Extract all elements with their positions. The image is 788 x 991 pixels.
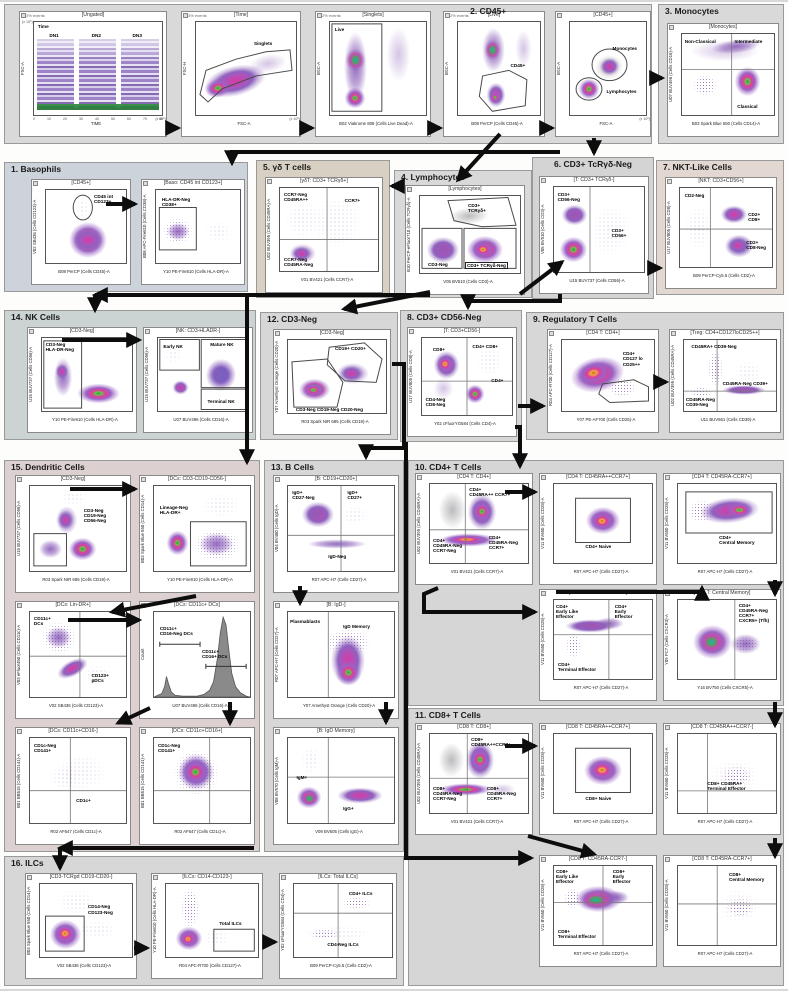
flow-plot: [CD3-TCRgd CD19-CD20-]CD14-Neg CD123-Neg…	[25, 873, 137, 979]
plot-corner-icon	[417, 475, 422, 480]
flow-plot: [DCs: CD3-CD19-CD56-]Lineage-Neg HLA-DR+…	[139, 475, 255, 593]
y-axis-label: U15 BUV737 (Cells CD56)-A	[29, 337, 39, 412]
gate-label: HLA-DR-Neg CD38+	[162, 197, 190, 207]
gate-label: CD2-Neg	[685, 193, 705, 198]
x-axis-unit: (x 10⁶)	[639, 117, 650, 121]
gate-label: CD4+ CD127 lo CD25++	[623, 351, 643, 366]
event-count-label: 2% events	[450, 13, 469, 18]
gate-label: CD2+ CD8+	[748, 212, 760, 222]
panel-title: 14. NK Cells	[11, 312, 60, 322]
plot-corner-icon	[541, 857, 546, 862]
plot-corner-icon	[145, 329, 150, 334]
plot-title: [CD4 T: CD45RA++CCR7+]	[540, 474, 656, 482]
gate-label: CD4+ Naive	[585, 544, 611, 549]
gate-label: Total ILCs	[219, 921, 241, 926]
gate-label: Live	[335, 27, 344, 32]
plot-corner-icon	[33, 181, 38, 186]
gate-label: DN2	[92, 33, 101, 38]
plot-corner-icon	[275, 603, 280, 608]
plot-area: CD1c-Neg CD141+CD1c+	[29, 737, 127, 824]
gate-label: CD1c-Neg CD141+	[158, 743, 180, 753]
gate-label: CD4+ Terminal Effector	[558, 662, 596, 672]
flow-plot: [ILCs: Total ILCs]CD4+ ILCsCD4-Neg ILCsY…	[279, 873, 397, 979]
gate-label: CD4+ Early Like Effector	[556, 604, 578, 619]
flow-plot: [Singlets]2% eventsLiveBSC-AB02 Viakrome…	[315, 11, 431, 137]
panel-nkt: 7. NKT-Like Cells[NKT: CD3+CD56+]CD2-Neg…	[656, 160, 784, 295]
y-axis-label: U07 BUV496 (Cells CD16)-A	[669, 33, 679, 116]
y-axis-unit: (x 10⁶)	[22, 20, 33, 24]
panel-cd3neg: 12. CD3-Neg[CD3-Neg]CD19+ CD20+CD3-Neg C…	[260, 312, 398, 440]
plot-title: [Lymphocytes]	[406, 186, 524, 194]
y-axis-label: V11 BV650 (Cells CD28)-A	[541, 733, 551, 814]
panel-title: 6. CD3+ TcRγδ-Neg	[554, 159, 632, 169]
x-axis-label: V02 SB436 (Cells CD123)-A	[23, 704, 129, 709]
gate-label: CD8+ CD45RA-Neg CCR7-Neg	[433, 786, 462, 801]
x-axis-label: V01 BV421 (Cells CCR7)-A	[273, 278, 381, 283]
plot-title: [NKT: CD3+CD56+]	[666, 178, 776, 186]
gate-label: CD4+ CD45RA-Neg CCR7+ CXCR5+ (Tfh)	[739, 603, 769, 623]
panel-title: 5. γδ T cells	[263, 162, 311, 172]
flow-plot: [B: IgD Memory]IgM+IgG+V08 BV570 (Cells …	[273, 727, 399, 845]
panel-title: 4. Lymphocytes	[401, 172, 465, 182]
panel-title: 13. B Cells	[271, 462, 314, 472]
gate-label: CD1c+	[76, 798, 91, 803]
x-tick: 20	[63, 117, 67, 121]
gate-outline	[599, 380, 649, 403]
gate-outline	[332, 24, 382, 111]
plot-area: CD3+ CD56-NegCD3+ CD56+	[553, 186, 645, 273]
gate-label: CD3-Neg CD19-Neg CD20-Neg	[296, 407, 363, 412]
panel-treg: 9. Regulatory T Cells[CD4 T: CD4+]CD4+ C…	[526, 312, 784, 440]
y-axis-label: R07 APC-H7 (Cells CD27)-A	[275, 611, 285, 698]
gate-overlay	[682, 34, 774, 115]
y-axis-label: Y10 PE-Fire810 (Cells HLA-DR)-A	[153, 883, 163, 958]
x-axis-label: Y10 PE-Fire810 (Cells HLA-DR)-A	[35, 418, 135, 423]
plot-corner-icon	[29, 329, 34, 334]
gate-outline	[686, 492, 772, 533]
plot-corner-icon	[667, 179, 672, 184]
y-axis-label: V02 SB436 (Cells CD123)-A	[33, 189, 43, 264]
panel-title: 1. Basophils	[11, 164, 61, 174]
flow-plot: [B: CD19+CD20+]IgD+ CD27-NegIgD+ CD27+Ig…	[273, 475, 399, 593]
gate-label: Classical	[737, 104, 757, 109]
flow-plot: [CD3-Neg]CD3-Neg CD19-Neg CD56-NegU15 BU…	[15, 475, 131, 593]
x-axis-label: FSC-A	[189, 122, 299, 127]
gate-overlay	[288, 612, 394, 697]
y-axis-label: Y09 PC7 (Cells CXCR3)-A	[665, 599, 675, 680]
y-axis-label: V05 BV510 (Cells CD3)-A	[541, 186, 551, 273]
plot-corner-icon	[549, 331, 554, 336]
gate-label: CCR7-Neg CD45RA-Neg	[284, 257, 313, 267]
plot-area: CD45RA+ CD39-NegCD45RA-Neg CD39+CD45RA-N…	[683, 339, 777, 412]
plot-corner-icon	[275, 331, 280, 336]
plot-area: CD4+ ILCsCD4-Neg ILCs	[293, 883, 393, 958]
flow-plot: [Treg: CD4+CD127loCD25++]CD45RA+ CD39-Ne…	[669, 329, 781, 433]
x-axis-label: V01 BV421 (Cells CCR7)-A	[423, 570, 531, 575]
x-axis-label: Y07 PE-AF700 (Cells CD25)-A	[555, 418, 657, 423]
x-axis-label: R02 AF647 (Cells CD1c)-A	[23, 830, 129, 835]
x-tick-labels: 01020304050607080	[33, 117, 163, 121]
plot-title: [CD4 T: Central Memory]	[664, 590, 780, 598]
panel-title: 8. CD3+ CD56-Neg	[407, 312, 481, 322]
plot-title: [CD8 T: CD45RA++CCR7+]	[540, 724, 656, 732]
gate-label: CD8+ Central Memory	[729, 872, 764, 882]
y-axis-label: V11 BV650 (Cells CD28)-A	[665, 865, 675, 946]
gate-label: CD8+ CD45RA++CCR7+	[471, 737, 511, 747]
gate-label: Terminal NK	[208, 399, 235, 404]
flow-plot: [Ungated]3% eventsTimeDN1DN2DN3FSC-ATIME…	[19, 11, 167, 137]
gate-outline	[292, 359, 343, 407]
y-axis-label: BSC-A	[445, 21, 455, 116]
gate-label: CD3-Neg HLA-DR-Neg	[46, 342, 74, 352]
panel-monocytes: 3. Monocytes[Monocytes]Non-ClassicalInte…	[658, 4, 784, 144]
flow-plot: [CD4 T: CD45RA-CCR7-]CD4+ Early Like Eff…	[539, 589, 657, 701]
plot-area: CD19+ CD20+CD3-Neg CD19-Neg CD20-Neg	[287, 339, 387, 414]
x-axis-label: U11 BUV661 (Cells CD39)-A	[677, 418, 779, 423]
plot-corner-icon	[281, 875, 286, 880]
x-axis-label: FSC-A	[563, 122, 649, 127]
flow-plot: [T: CD3+CD56-]CD8+CD4+ CD8+CD4+CD4-Neg C…	[407, 327, 517, 437]
flow-plot: [CD45+]MonocytesLymphocytesBSC-AFSC-A(x …	[555, 11, 651, 137]
x-axis-label: V01 BV421 (Cells CCR7)-A	[423, 820, 531, 825]
x-axis-label: R07 APC-H7 (Cells CD27)-A	[547, 820, 655, 825]
x-axis-label: V02 SB436 (Cells CD123)-A	[33, 964, 135, 969]
gate-label: CD4-Neg CD8-Neg	[426, 397, 446, 407]
plot-corner-icon	[143, 181, 148, 186]
flow-plot: [CD8 T: CD45RA-CCR7+]CD8+ Central Memory…	[663, 855, 781, 967]
plot-corner-icon	[669, 25, 674, 30]
gate-outline	[200, 50, 292, 102]
plot-title: [CD8 T: CD45RA++CCR7-]	[664, 724, 780, 732]
y-axis-label: B03 Spark Blue 550 (Cells CD14)-A	[27, 883, 37, 958]
plot-area: IgD+ CD27-NegIgD+ CD27+IgD-Neg	[287, 485, 395, 572]
x-axis-label: U15 BUV737 (Cells CD56)-A	[547, 279, 647, 284]
plot-area: CD4+ Naive	[553, 483, 653, 564]
gate-label: Singlets	[254, 41, 272, 46]
y-axis-label: U02 BUV395 (Cells CD45RA)-A	[417, 483, 427, 564]
gate-label: CD8+ Early Effector	[613, 869, 631, 884]
plot-title: [ILCs: Total ILCs]	[280, 874, 396, 882]
plot-title: [DCs: CD11c+ DCs]	[140, 602, 254, 610]
gate-label: CD3-Neg	[428, 262, 448, 267]
plot-title: [Monocytes]	[668, 24, 778, 32]
flow-plot: [Time]3% eventsSingletsFSC-HFSC-A(x 10⁶)	[181, 11, 301, 137]
gate-overlay	[330, 22, 426, 115]
x-axis-label: R03 Spark NIR 685 (Cells CD19)-A	[23, 578, 129, 583]
gate-label: CD11c+ CD16+ DCs	[202, 649, 227, 659]
panel-title: 7. NKT-Like Cells	[663, 162, 732, 172]
panel-cd3cd56neg: 8. CD3+ CD56-Neg[T: CD3+CD56-]CD8+CD4+ C…	[400, 310, 522, 442]
gate-label: CD11c+ CD16-Neg DCs	[160, 626, 193, 636]
plot-title: [B: IgD Memory]	[274, 728, 398, 736]
plot-corner-icon	[671, 331, 676, 336]
y-axis-label: V11 BV650 (Cells CD28)-A	[541, 865, 551, 946]
y-axis-label: R04 APC-R700 (Cells CD127)-A	[549, 339, 559, 412]
gate-outline	[576, 748, 631, 792]
panel-title: 9. Regulatory T Cells	[533, 314, 617, 324]
gate-overlay	[154, 486, 250, 571]
gate-label: CD8+	[433, 347, 445, 352]
gate-label: CD45RA+ CD39-Neg	[691, 344, 736, 349]
flow-plot: [DCs: CD11c+CD16-]CD1c-Neg CD141+CD1c+B0…	[15, 727, 131, 845]
plot-area: CD8+CD4+ CD8+CD4+CD4-Neg CD8-Neg	[421, 337, 513, 416]
plot-corner-icon	[17, 729, 22, 734]
plot-area: Live	[329, 21, 427, 116]
gate-overlay	[570, 22, 646, 115]
gate-label: CD45RA-Neg CD39+	[723, 381, 768, 386]
gate-label: CD2+ CD8-Neg	[746, 240, 766, 250]
flow-plot: [NK: CD3-HLADR-]Early NKMature NKTermina…	[143, 327, 253, 433]
event-count-label: 2% events	[322, 13, 341, 18]
x-tick: 40	[95, 117, 99, 121]
plot-area: Total ILCs	[165, 883, 259, 958]
gate-label: Time	[38, 24, 49, 29]
flow-plot: [γδT: CD3+ TCRγδ+]CCR7-Neg CD45RA++CCR7+…	[265, 177, 383, 293]
gate-label: CD4+ CD45RA++ CCR7+	[469, 487, 510, 497]
y-axis-label: BSC-A	[557, 21, 567, 116]
plot-title: [DCs: CD11c+CD16+]	[140, 728, 254, 736]
gate-outline	[159, 208, 196, 250]
panel-lymphocytes: 4. Lymphocytes[Lymphocytes]CD3+ TCRγδ+CD…	[394, 170, 532, 298]
gate-label: CD14-Neg CD123-Neg	[88, 904, 113, 914]
plot-title: [T: CD3+CD56-]	[408, 328, 516, 336]
x-axis-label: R07 APC-H7 (Cells CD27)-A	[547, 686, 655, 691]
plot-corner-icon	[275, 729, 280, 734]
panel-dc: 15. Dendritic Cells[CD3-Neg]CD3-Neg CD19…	[4, 460, 260, 852]
plot-area: CD2-NegCD2+ CD8+CD2+ CD8-Neg	[679, 187, 773, 268]
gate-label: Lymphocytes	[606, 89, 636, 94]
plot-title: [CD3-Neg]	[16, 476, 130, 484]
gate-overlay	[554, 484, 652, 563]
plot-corner-icon	[17, 477, 22, 482]
gate-overlay	[678, 484, 776, 563]
gate-label: CD123+ pDCs	[91, 673, 108, 683]
plot-corner-icon	[541, 178, 546, 183]
x-axis-label: R07 APC-H7 (Cells CD27)-A	[671, 952, 779, 957]
x-tick: 70	[143, 117, 147, 121]
plot-title: [CD8 T: CD8+]	[416, 724, 532, 732]
y-axis-label: V11 BV650 (Cells CD28)-A	[541, 599, 551, 680]
gate-label: CD3+ CD56-Neg	[558, 192, 580, 202]
gate-overlay	[40, 884, 132, 957]
gate-label: CD4+ CD8+	[472, 344, 498, 349]
gate-outline	[34, 534, 67, 566]
y-axis-label: B08 APC-Fire810 (Cells CD38)-A	[143, 189, 153, 264]
plot-corner-icon	[665, 725, 670, 730]
plot-area: CD8+ Central Memory	[677, 865, 777, 946]
plot-area: CD45+	[457, 21, 541, 116]
panel-nk: 14. NK Cells[CD3-Neg]CD3-Neg HLA-DR-NegU…	[4, 310, 256, 440]
x-axis-label: R07 APC-H7 (Cells CD27)-A	[547, 570, 655, 575]
plot-title: [Treg: CD4+CD127loCD25++]	[670, 330, 780, 338]
gate-outline	[592, 49, 627, 81]
plot-area: CD4+ CD45RA-Neg CCR7+ CXCR5+ (Tfh)	[677, 599, 777, 680]
plot-title: [CD3-Neg]	[274, 330, 390, 338]
gate-label: CD45 int CD123+	[94, 194, 113, 204]
gate-label: CD3+ TCRγδ-Neg	[465, 262, 508, 269]
y-axis-label: U17 BUV805 (Cells CD8)-A	[667, 187, 677, 268]
panel-gdt: 5. γδ T cells[γδT: CD3+ TCRγδ+]CCR7-Neg …	[256, 160, 390, 298]
x-tick: 30	[79, 117, 83, 121]
flow-plot: [CD4 T: CD45RA-CCR7+]CD4+ Central Memory…	[663, 473, 781, 585]
panel-cd8t: 11. CD8+ T Cells[CD8 T: CD8+]CD8+ CD45RA…	[408, 708, 784, 986]
gate-outline	[576, 78, 602, 100]
panel-ilcs: 16. ILCs[CD3-TCRgd CD19-CD20-]CD14-Neg C…	[4, 856, 404, 986]
gate-label: CD45+	[510, 63, 525, 68]
flow-plot: [CD8 T: CD45RA++CCR7-]CD8+ CD45RA+ Termi…	[663, 723, 781, 835]
gate-label: CD11c+ DCs	[34, 616, 51, 626]
panel-title: 12. CD3-Neg	[267, 314, 317, 324]
y-axis-label: FSC-H	[183, 21, 193, 116]
gate-label: IgD+ CD27+	[347, 490, 362, 500]
plot-corner-icon	[275, 477, 280, 482]
y-axis-label: B01 BB515 (Cells CD141)-A	[17, 737, 27, 824]
gate-overlay	[288, 340, 386, 413]
plot-area: CD4+ CD127 lo CD25++	[561, 339, 655, 412]
x-axis-label: U07 BUV496 (Cells CD16)-A	[147, 704, 253, 709]
gate-outline	[73, 195, 92, 220]
gate-outline	[479, 70, 527, 111]
flow-plot: [CD3-Neg]CD3-Neg HLA-DR-NegU15 BUV737 (C…	[27, 327, 137, 433]
gate-label: CD8+ CD45RA-Neg CCR7+	[487, 786, 516, 801]
y-axis-label: V03 eFluor450 (Cells CD11c)-A	[17, 611, 27, 698]
gate-label: CD4+ ILCs	[349, 891, 373, 896]
x-tick: 10	[47, 117, 51, 121]
plot-area: CD11c+ DCsCD123+ pDCs	[29, 611, 127, 698]
plot-title: [ILCs: CD14-CD123-]	[152, 874, 262, 882]
plot-title: [CD4 T: CD45RA-CCR7-]	[540, 590, 656, 598]
flow-plot: [DCs: CD11c+CD16+]CD1c-Neg CD141+B01 BB5…	[139, 727, 255, 845]
panel-title: 16. ILCs	[11, 858, 44, 868]
gate-overlay	[46, 190, 126, 263]
x-axis-label: B09 PerCP-Cy5.5 (Cells CD2)-A	[287, 964, 395, 969]
gate-label: CCR7-Neg CD45RA++	[284, 192, 308, 202]
plot-area: CD4+ CD45RA++ CCR7+CD4+ CD45RA-Neg CCR7-…	[429, 483, 529, 564]
gate-overlay	[30, 486, 126, 571]
plot-area: Singlets	[195, 21, 297, 116]
plot-corner-icon	[541, 475, 546, 480]
x-tick: 60	[127, 117, 131, 121]
event-count-label: 3% events	[26, 13, 45, 18]
plot-title: [CD8 T: CD45RA-CCR7-]	[540, 856, 656, 864]
plot-title: [CD45+]	[32, 180, 130, 188]
flow-plot: [DCs: Lin-DR+]CD11c+ DCsCD123+ pDCsV03 e…	[15, 601, 131, 719]
gate-label: CD3-Neg CD19-Neg CD56-Neg	[84, 508, 106, 523]
plot-area: CD4+ Early Like EffectorCD4+ Early Effec…	[553, 599, 653, 680]
plot-corner-icon	[153, 875, 158, 880]
flow-plot: [CD4 T: CD4+]CD4+ CD45RA++ CCR7+CD4+ CD4…	[415, 473, 533, 585]
y-axis-label: Count	[141, 611, 151, 698]
gating-strategy-diagram: 2. CD45+[Ungated]3% eventsTimeDN1DN2DN3F…	[0, 0, 788, 991]
plot-corner-icon	[665, 591, 670, 596]
flow-plot: [Lymphocytes]CD3+ TCRγδ+CD3-NegCD3+ TCRγ…	[405, 185, 525, 295]
plot-title: [CD3-TCRgd CD19-CD20-]	[26, 874, 136, 882]
flow-plot: [Baso: CD45 int CD123+]HLA-DR-Neg CD38+B…	[141, 179, 245, 285]
gate-label: CD4+	[491, 378, 503, 383]
plot-area: CD3-Neg CD19-Neg CD56-Neg	[29, 485, 127, 572]
gate-label: IgG+	[343, 806, 354, 811]
plot-title: [B: CD19+CD20+]	[274, 476, 398, 484]
x-axis-label: Y16 BV750 (Cells CXCR5)-A	[671, 686, 779, 691]
x-axis-label: TIME	[27, 122, 165, 127]
flow-plot: [T: CD3+ TCRγδ-]CD3+ CD56-NegCD3+ CD56+V…	[539, 176, 649, 294]
flow-plot: [CD4 T: Central Memory]CD4+ CD45RA-Neg C…	[663, 589, 781, 701]
x-axis-label: R07 APC-H7 (Cells CD27)-A	[281, 578, 397, 583]
plot-area: HLA-DR-Neg CD38+	[155, 189, 241, 264]
flow-plot: [CD8 T: CD45RA-CCR7-]CD8+ Early Like Eff…	[539, 855, 657, 967]
gate-label: IgD-Neg	[328, 554, 346, 559]
panel-title: 15. Dendritic Cells	[11, 462, 85, 472]
gate-label: Plasmablasts	[290, 619, 320, 624]
x-axis-label: V05 BV510 (Cells CD3)-A	[413, 280, 523, 285]
plot-title: [T: CD3+ TCRγδ-]	[540, 177, 648, 185]
plot-corner-icon	[27, 875, 32, 880]
y-axis-label: V08 BV570 (Cells IgM)-A	[275, 737, 285, 824]
x-axis-label: V09 BV605 (Cells IgG)-A	[281, 830, 397, 835]
gate-label: CD45RA-Neg CD39-Neg	[686, 397, 715, 407]
gate-overlay	[196, 22, 296, 115]
x-axis-unit: (x 10⁶)	[289, 117, 300, 121]
plot-area: CD14-Neg CD123-Neg	[39, 883, 133, 958]
gate-label: CD4+ Central Memory	[719, 535, 754, 545]
gate-label: DN1	[49, 33, 58, 38]
x-axis-label: R02 AF647 (Cells CD1c)-A	[147, 830, 253, 835]
flow-plot: [CD45+]CD45 int CD123+V02 SB436 (Cells C…	[31, 179, 131, 285]
gate-label: CD4+ Early Effector	[615, 604, 633, 619]
plot-corner-icon	[665, 857, 670, 862]
plot-area: CD8+ Early Like EffectorCD8+ Early Effec…	[553, 865, 653, 946]
y-axis-label: U15 BUV737 (Cells CD56)-A	[17, 485, 27, 572]
gate-overlay	[680, 188, 772, 267]
gate-outline	[190, 522, 246, 566]
gate-label: Monocytes	[613, 46, 637, 51]
gate-label: CD8+ Terminal Effector	[558, 929, 596, 939]
flow-plot: [B: IgD-]PlasmablastsIgD MemoryR07 APC-H…	[273, 601, 399, 719]
y-axis-label: U02 BUV395 (Cells CD45RA)-A	[417, 733, 427, 814]
plot-title: [CD8 T: CD45RA-CCR7+]	[664, 856, 780, 864]
plot-area: CD4+ Central Memory	[677, 483, 777, 564]
plot-corner-icon	[407, 187, 412, 192]
plot-title: [CD4 T: CD4+]	[548, 330, 658, 338]
plot-title: [CD4 T: CD4+]	[416, 474, 532, 482]
plot-area: Lineage-Neg HLA-DR+	[153, 485, 251, 572]
flow-plot: [DCs: CD11c+ DCs]CD11c+ CD16-Neg DCsCD11…	[139, 601, 255, 719]
plot-area: CD3+ TCRγδ+CD3-NegCD3+ TCRγδ-Neg	[419, 195, 521, 274]
gate-label: CD3+ CD56+	[612, 228, 627, 238]
plot-title: [DCs: Lin-DR+]	[16, 602, 130, 610]
plot-corner-icon	[141, 477, 146, 482]
panel-title: 10. CD4+ T Cells	[415, 462, 481, 472]
plot-area: CD1c-Neg CD141+	[153, 737, 251, 824]
flow-plot: [CD8 T: CD8+]CD8+ CD45RA++CCR7+CD8+ CD45…	[415, 723, 533, 835]
gate-label: Non-Classical	[685, 39, 716, 44]
flow-plot: [Live]2% eventsCD45+BSC-AB08 PerCP (Cell…	[443, 11, 545, 137]
panel-cd4t: 10. CD4+ T Cells[CD4 T: CD4+]CD4+ CD45RA…	[408, 460, 784, 706]
plot-corner-icon	[17, 603, 22, 608]
y-axis-label: B03 Spark Blue 550 (Cells CD14)-A	[141, 485, 151, 572]
gate-label: CD4-Neg ILCs	[327, 942, 358, 947]
plot-title: [B: IgD-]	[274, 602, 398, 610]
plot-area: MonocytesLymphocytes	[569, 21, 647, 116]
panel-title: 2. CD45+	[470, 6, 506, 16]
plot-corner-icon	[557, 13, 562, 18]
y-axis-label: V11 BV650 (Cells CD28)-A	[665, 483, 675, 564]
plot-area: CD3-Neg HLA-DR-Neg	[41, 337, 133, 412]
gate-label: CD19+ CD20+	[335, 346, 366, 351]
panel-title: 3. Monocytes	[665, 6, 719, 16]
plot-area: CCR7-Neg CD45RA++CCR7+CCR7-Neg CD45RA-Ne…	[279, 187, 379, 272]
plot-title: [CD45+]	[556, 12, 650, 20]
